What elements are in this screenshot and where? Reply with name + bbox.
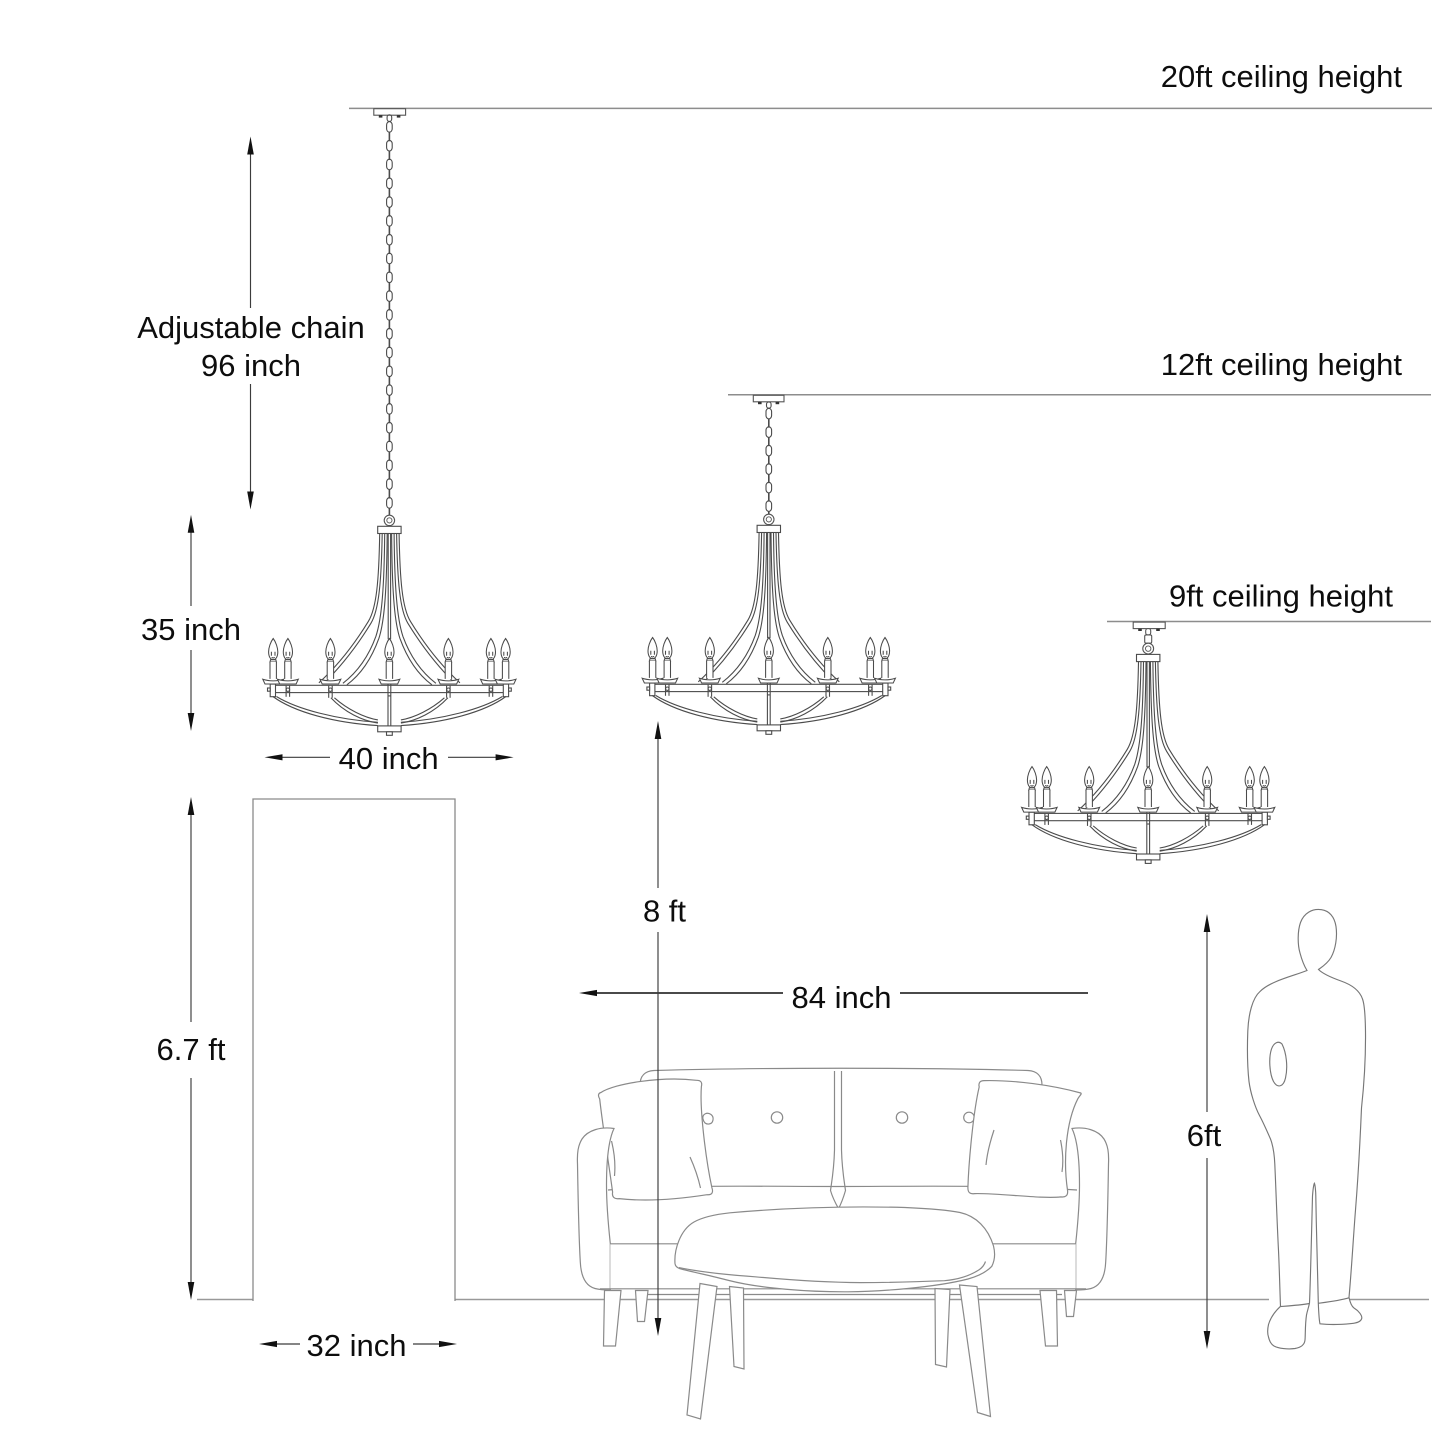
svg-text:6.7 ft: 6.7 ft bbox=[157, 1032, 226, 1067]
svg-text:8 ft: 8 ft bbox=[643, 894, 686, 929]
svg-text:84 inch: 84 inch bbox=[792, 980, 892, 1015]
svg-text:12ft ceiling height: 12ft ceiling height bbox=[1161, 347, 1403, 382]
svg-text:96 inch: 96 inch bbox=[201, 348, 301, 383]
svg-text:9ft ceiling height: 9ft ceiling height bbox=[1169, 579, 1393, 614]
svg-text:20ft ceiling height: 20ft ceiling height bbox=[1161, 59, 1403, 94]
svg-text:6ft: 6ft bbox=[1187, 1118, 1222, 1153]
svg-text:40 inch: 40 inch bbox=[339, 741, 439, 776]
svg-text:Adjustable chain: Adjustable chain bbox=[137, 310, 365, 345]
svg-text:35 inch: 35 inch bbox=[141, 612, 241, 647]
svg-text:32 inch: 32 inch bbox=[307, 1328, 407, 1363]
